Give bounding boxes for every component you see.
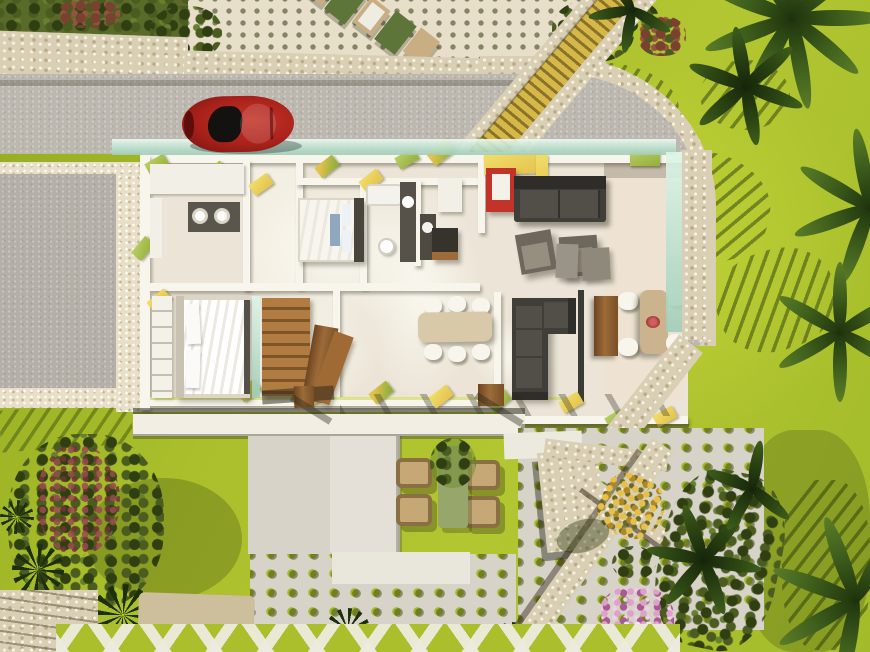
bed-headboard: [354, 198, 364, 262]
bed-pillow-master: [185, 350, 200, 388]
washer-drum: [192, 208, 208, 224]
bed-foot-bench: [244, 300, 250, 394]
agave-plant: [12, 544, 64, 596]
lounge-chair: [396, 458, 432, 488]
wardrobe: [152, 296, 172, 398]
villa-aerial-render: [0, 0, 870, 652]
glass-railing-east: [666, 152, 682, 332]
bath-sink: [402, 196, 414, 208]
utility-counter: [150, 164, 244, 194]
sofa-cushion: [544, 302, 570, 328]
dining-table: [418, 311, 493, 342]
bed-headboard-master: [176, 296, 184, 398]
car-spoiler: [184, 111, 194, 139]
terrace-armchair: [581, 247, 611, 280]
stone-wall-east: [682, 150, 712, 340]
agave-plant: [0, 500, 34, 534]
car-hood-line: [270, 107, 274, 139]
media-cabinet: [594, 296, 618, 356]
sofa-cushion: [516, 358, 542, 388]
stair-glass-rail: [252, 296, 260, 398]
armchair-seat: [521, 242, 551, 270]
kitchen-island-wood: [432, 252, 458, 260]
wall-divider: [243, 160, 250, 290]
wall-shadow-face: [578, 290, 584, 402]
kitchen-cabinet: [438, 178, 462, 212]
wall-west: [140, 155, 150, 410]
bed-pillow: [342, 204, 351, 226]
sofa-cushion: [516, 330, 542, 356]
red-car: [182, 95, 295, 153]
dining-chair: [424, 344, 442, 360]
bed-pillow: [342, 230, 351, 252]
bed-throw: [330, 214, 340, 246]
white-roof-pad: [330, 436, 398, 552]
sofa-seat: [520, 190, 600, 218]
sofa-armrest: [568, 298, 576, 334]
wall-shadow: [0, 80, 520, 86]
dining-chair: [472, 344, 490, 360]
utility-shelf: [150, 198, 162, 258]
terrace-chair: [618, 292, 638, 310]
bath-counter: [400, 182, 416, 262]
side-pad: [0, 174, 116, 388]
toilet: [378, 238, 395, 255]
gravel-border: [0, 162, 150, 174]
red-blooms: [36, 444, 120, 556]
sofa-backrest: [514, 176, 606, 189]
white-path: [332, 552, 470, 584]
sofa-cushion: [516, 306, 542, 328]
terrace-bench: [555, 244, 578, 279]
wall-mid: [150, 283, 480, 291]
dining-chair: [448, 296, 466, 312]
table-flowers: [646, 316, 660, 328]
lounge-chair: [464, 496, 500, 528]
red-bush: [58, 0, 120, 28]
dryer-drum: [214, 208, 230, 224]
planter-plant: [430, 438, 476, 488]
chevron-paving: [56, 624, 680, 652]
bed-pillow-master: [185, 304, 201, 345]
lounge-chair: [396, 494, 432, 526]
bathtub: [366, 184, 402, 206]
dining-chair: [448, 346, 466, 362]
red-cabinet-inner: [492, 174, 510, 200]
gravel-border: [0, 388, 116, 408]
terrace-chair: [618, 338, 638, 356]
staircase: [262, 298, 310, 396]
